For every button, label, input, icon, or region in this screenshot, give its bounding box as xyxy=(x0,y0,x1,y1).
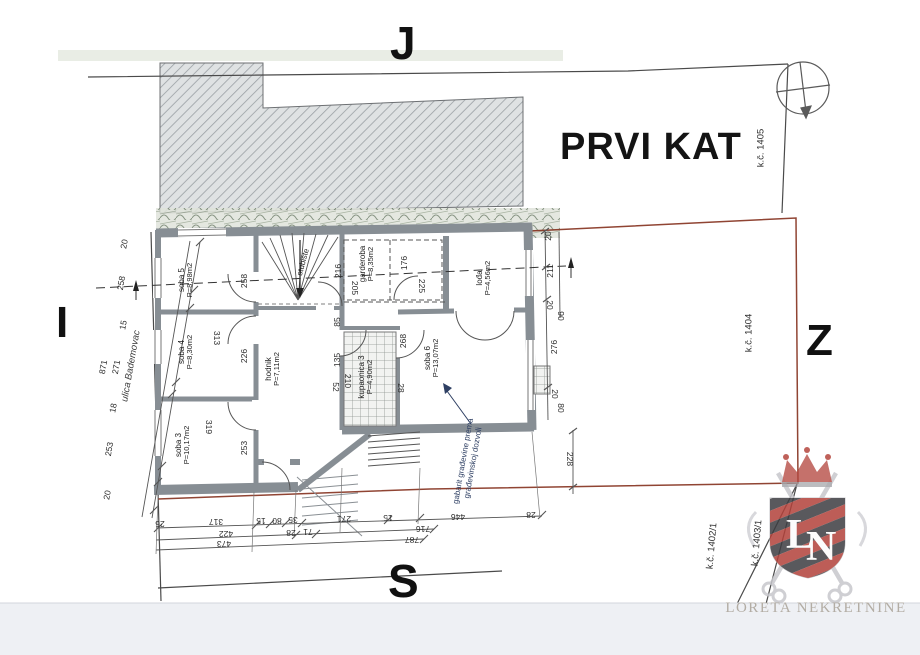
scan-bottom-strip xyxy=(0,603,920,655)
floorplan-drawing: L N xyxy=(0,0,920,655)
scan-edge-band xyxy=(58,50,563,61)
floorplan-document: L N J I Z S PRVI KAT ulica Bademovac gab… xyxy=(0,0,920,655)
monogram-letter-n: N xyxy=(806,524,836,570)
bathroom-tiled-floor xyxy=(344,332,396,426)
